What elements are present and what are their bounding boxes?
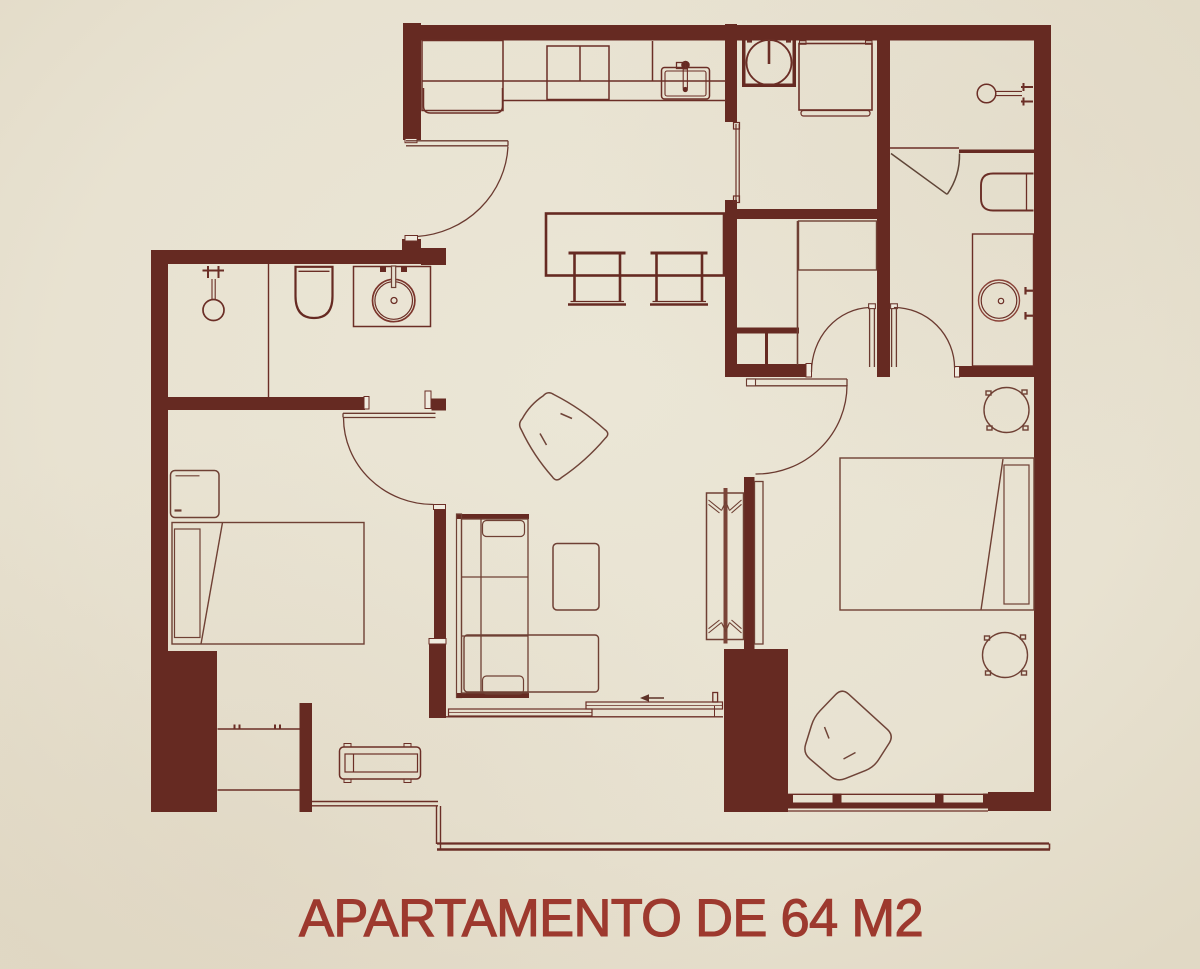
svg-text:APARTAMENTO DE 64 M2: APARTAMENTO DE 64 M2 xyxy=(299,889,923,948)
